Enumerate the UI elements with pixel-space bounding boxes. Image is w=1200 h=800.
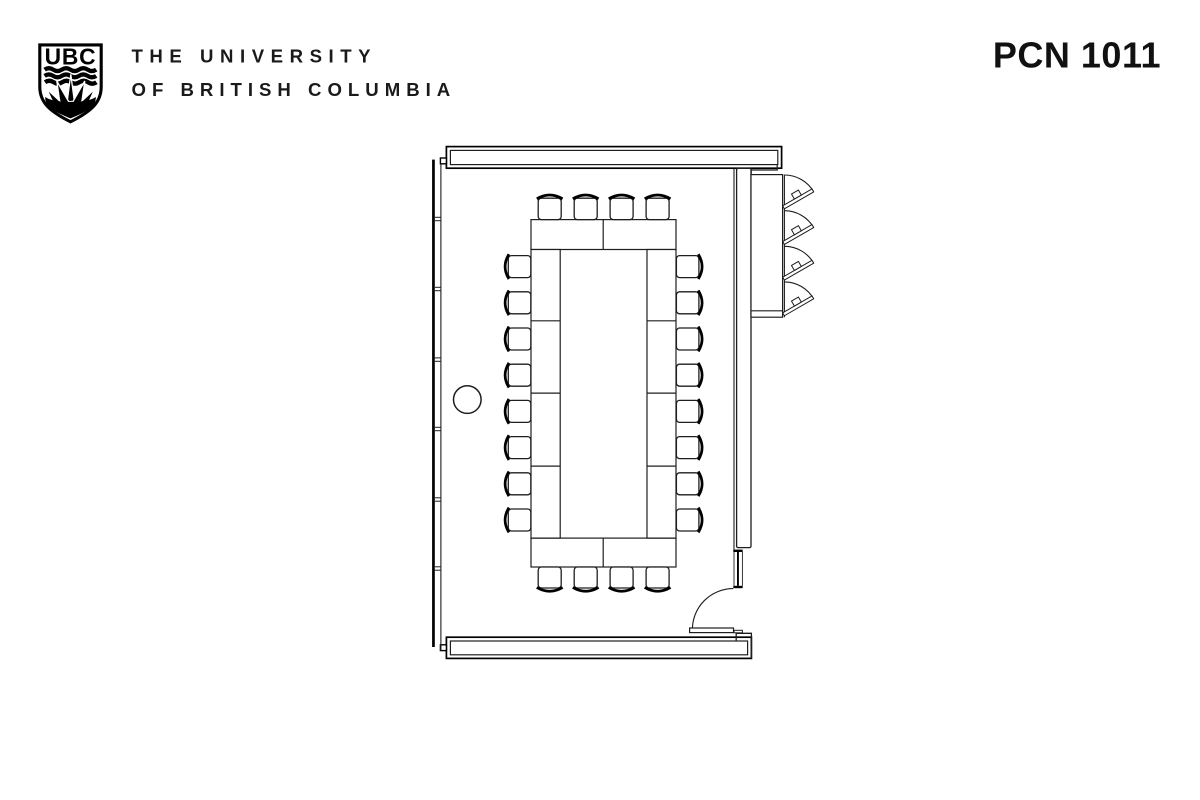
svg-text:OF BRITISH COLUMBIA: OF BRITISH COLUMBIA	[132, 79, 457, 100]
svg-text:PCN 1011: PCN 1011	[993, 35, 1161, 76]
svg-text:THE UNIVERSITY: THE UNIVERSITY	[132, 46, 378, 67]
svg-text:UBC: UBC	[45, 43, 97, 69]
